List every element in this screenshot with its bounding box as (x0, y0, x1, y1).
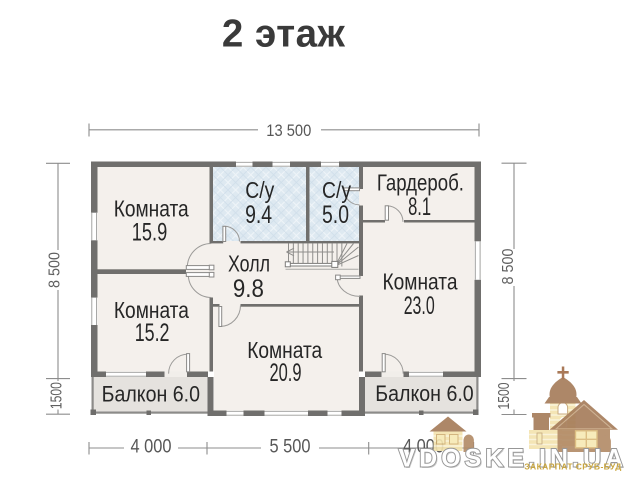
svg-text:Комната: Комната (383, 269, 459, 295)
svg-text:13 500: 13 500 (266, 122, 311, 140)
svg-text:ЗАКАРПАТ СРУБ-БУД: ЗАКАРПАТ СРУБ-БУД (524, 462, 621, 472)
svg-text:4 000: 4 000 (131, 436, 172, 457)
svg-text:8.1: 8.1 (408, 193, 431, 221)
svg-text:2 этаж: 2 этаж (222, 13, 346, 56)
svg-text:9.4: 9.4 (245, 201, 272, 229)
svg-text:8 500: 8 500 (46, 252, 63, 288)
svg-text:С/у: С/у (245, 177, 274, 203)
svg-text:9.8: 9.8 (233, 275, 264, 303)
svg-text:1500: 1500 (496, 382, 513, 409)
svg-text:С/у: С/у (322, 177, 351, 203)
svg-text:1500: 1500 (49, 382, 66, 409)
svg-text:15.2: 15.2 (135, 319, 170, 347)
svg-text:5 500: 5 500 (270, 436, 311, 457)
svg-text:23.0: 23.0 (404, 292, 435, 320)
svg-text:8 500: 8 500 (500, 248, 517, 284)
svg-text:Гардероб.: Гардероб. (377, 170, 464, 196)
svg-text:Холл: Холл (228, 250, 270, 276)
svg-text:5.0: 5.0 (322, 201, 349, 229)
svg-text:Балкон 6.0: Балкон 6.0 (375, 381, 473, 406)
svg-text:15.9: 15.9 (132, 218, 168, 246)
svg-text:Балкон 6.0: Балкон 6.0 (102, 382, 200, 407)
svg-text:20.9: 20.9 (270, 359, 302, 387)
